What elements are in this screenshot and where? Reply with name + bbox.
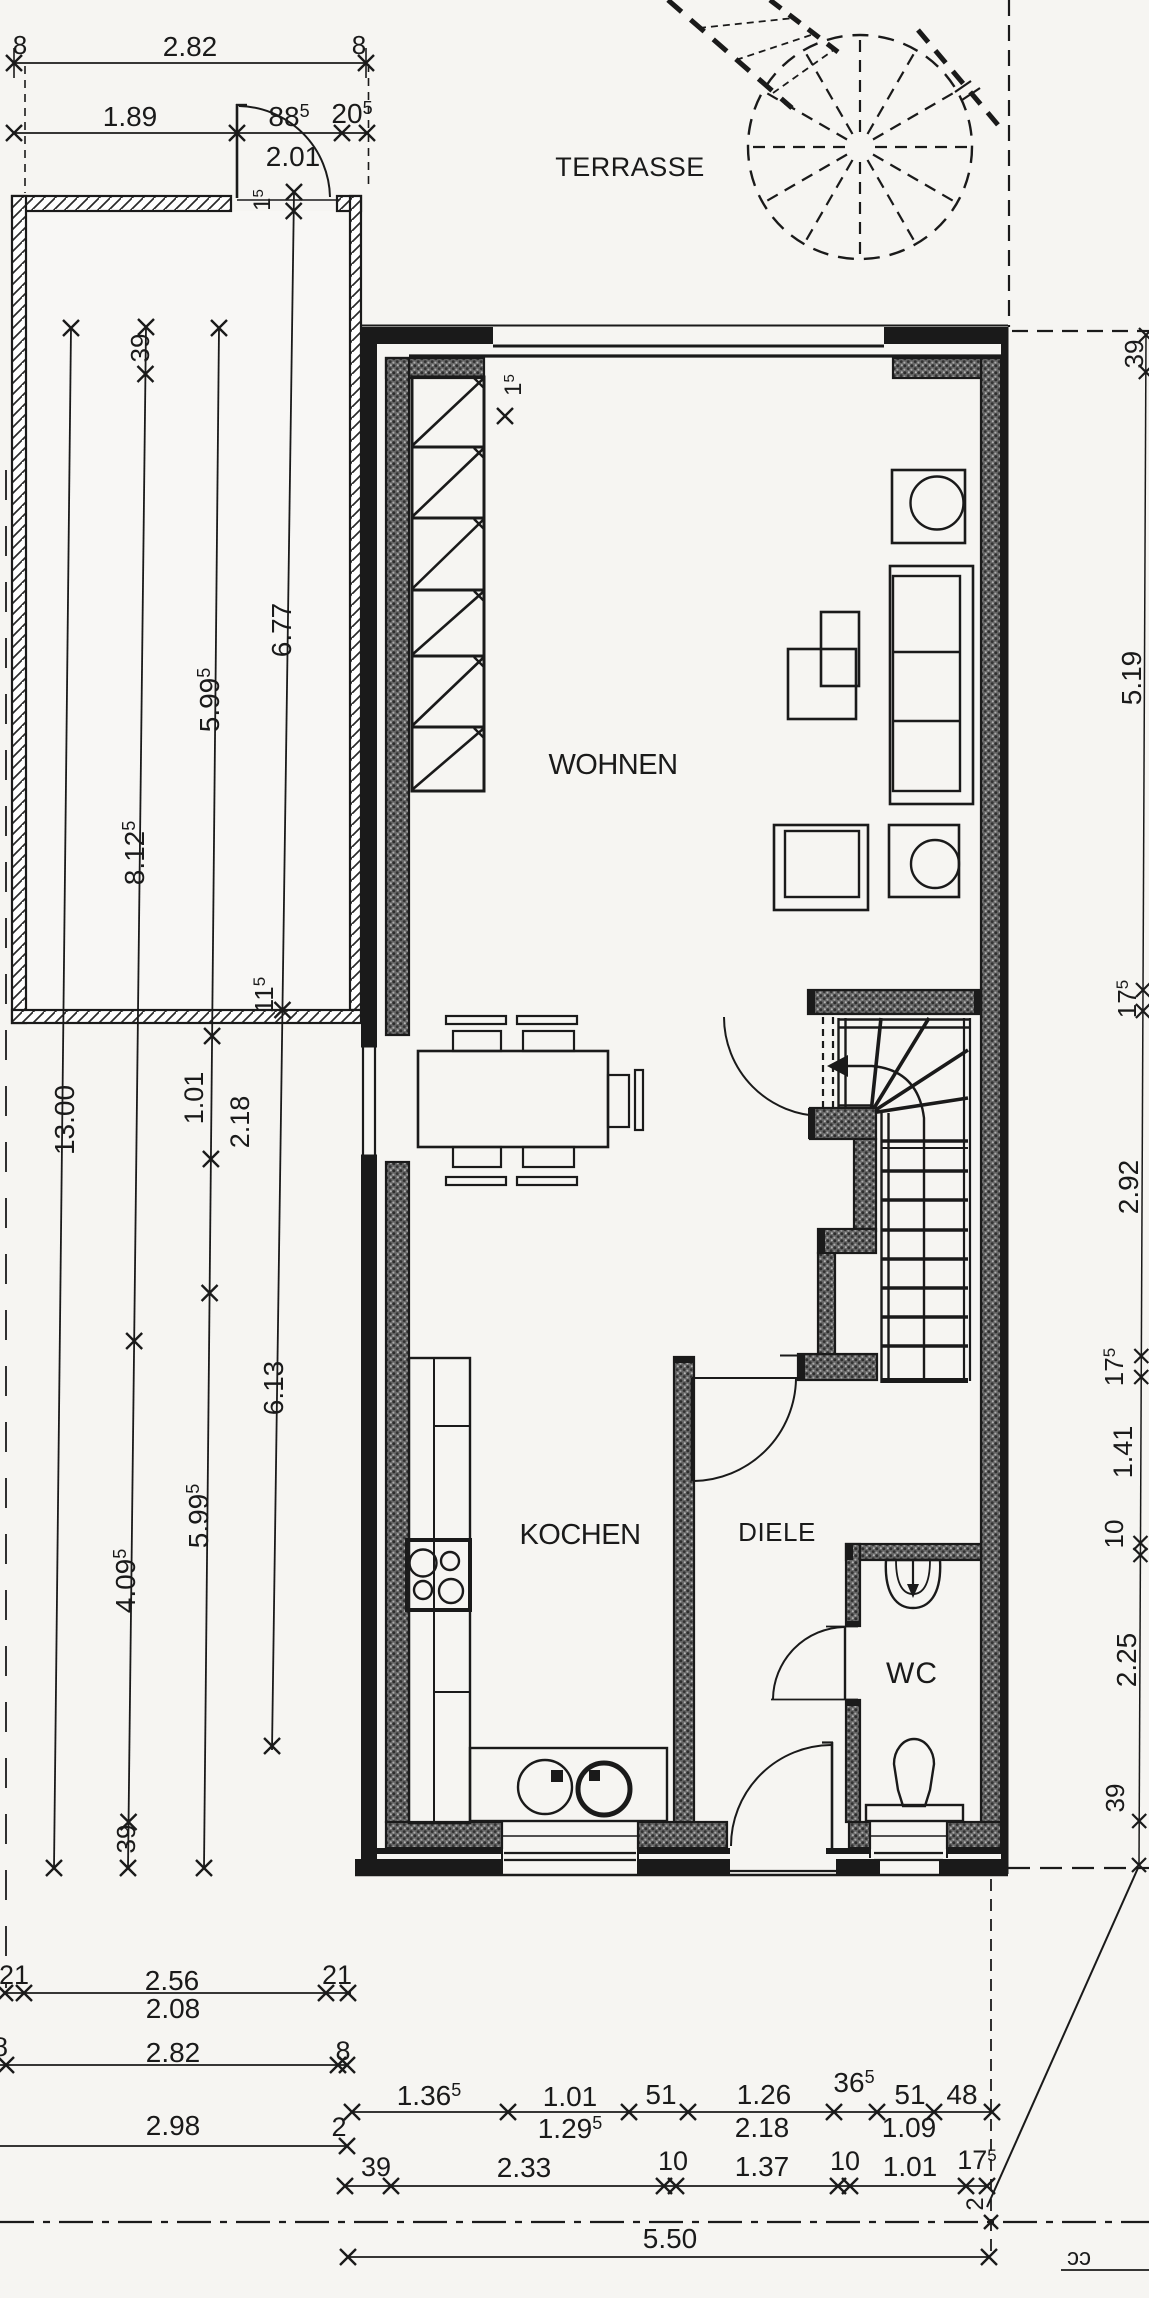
svg-text:WC: WC	[886, 1657, 938, 1690]
svg-text:51: 51	[645, 2079, 676, 2110]
svg-text:1.01: 1.01	[883, 2151, 938, 2182]
svg-text:1.26: 1.26	[737, 2079, 792, 2110]
svg-text:1.89: 1.89	[103, 101, 158, 132]
svg-text:8: 8	[13, 30, 27, 60]
svg-text:2.18: 2.18	[735, 2112, 790, 2143]
svg-text:2.82: 2.82	[163, 31, 218, 62]
svg-text:39: 39	[1100, 1784, 1130, 1813]
svg-text:21: 21	[322, 1960, 352, 1990]
svg-text:2.25: 2.25	[1111, 1633, 1142, 1688]
svg-text:39: 39	[1119, 340, 1149, 369]
svg-text:2: 2	[962, 2197, 989, 2210]
svg-text:DIELE: DIELE	[738, 1517, 816, 1547]
svg-text:KOCHEN: KOCHEN	[519, 1519, 640, 1551]
svg-text:13.00: 13.00	[49, 1085, 80, 1155]
svg-text:21: 21	[0, 1960, 29, 1990]
svg-text:39: 39	[125, 334, 155, 363]
svg-text:1.37: 1.37	[735, 2151, 790, 2182]
svg-text:TERRASSE: TERRASSE	[555, 152, 705, 182]
svg-text:ɔɔ: ɔɔ	[1067, 2244, 1091, 2271]
svg-text:2.01: 2.01	[266, 141, 321, 172]
svg-text:5.19: 5.19	[1116, 651, 1147, 706]
svg-text:2.98: 2.98	[146, 2110, 201, 2141]
svg-text:10: 10	[830, 2146, 860, 2176]
svg-text:48: 48	[946, 2079, 977, 2110]
svg-text:1.41: 1.41	[1108, 1426, 1138, 1479]
svg-text:10: 10	[1099, 1520, 1129, 1549]
svg-text:1.01: 1.01	[179, 1072, 209, 1125]
svg-text:10: 10	[658, 2146, 688, 2176]
svg-text:6.77: 6.77	[266, 603, 297, 658]
svg-text:5.50: 5.50	[643, 2223, 698, 2254]
svg-text:1.01: 1.01	[543, 2081, 598, 2112]
svg-text:2.18: 2.18	[225, 1096, 255, 1149]
svg-text:2.92: 2.92	[1113, 1160, 1144, 1215]
svg-text:39: 39	[361, 2152, 391, 2182]
svg-text:51: 51	[894, 2079, 925, 2110]
svg-text:2.82: 2.82	[146, 2037, 201, 2068]
svg-text:2: 2	[331, 2112, 346, 2142]
svg-text:6.13: 6.13	[258, 1361, 289, 1416]
svg-text:8: 8	[335, 2036, 350, 2066]
svg-text:39: 39	[111, 1825, 141, 1854]
svg-text:8: 8	[352, 30, 366, 60]
svg-text:1.09: 1.09	[882, 2112, 937, 2143]
svg-text:2.56: 2.56	[145, 1965, 200, 1996]
svg-text:8: 8	[0, 2032, 8, 2062]
svg-text:2.33: 2.33	[497, 2152, 552, 2183]
svg-text:2.08: 2.08	[146, 1993, 201, 2024]
svg-text:WOHNEN: WOHNEN	[548, 749, 677, 781]
